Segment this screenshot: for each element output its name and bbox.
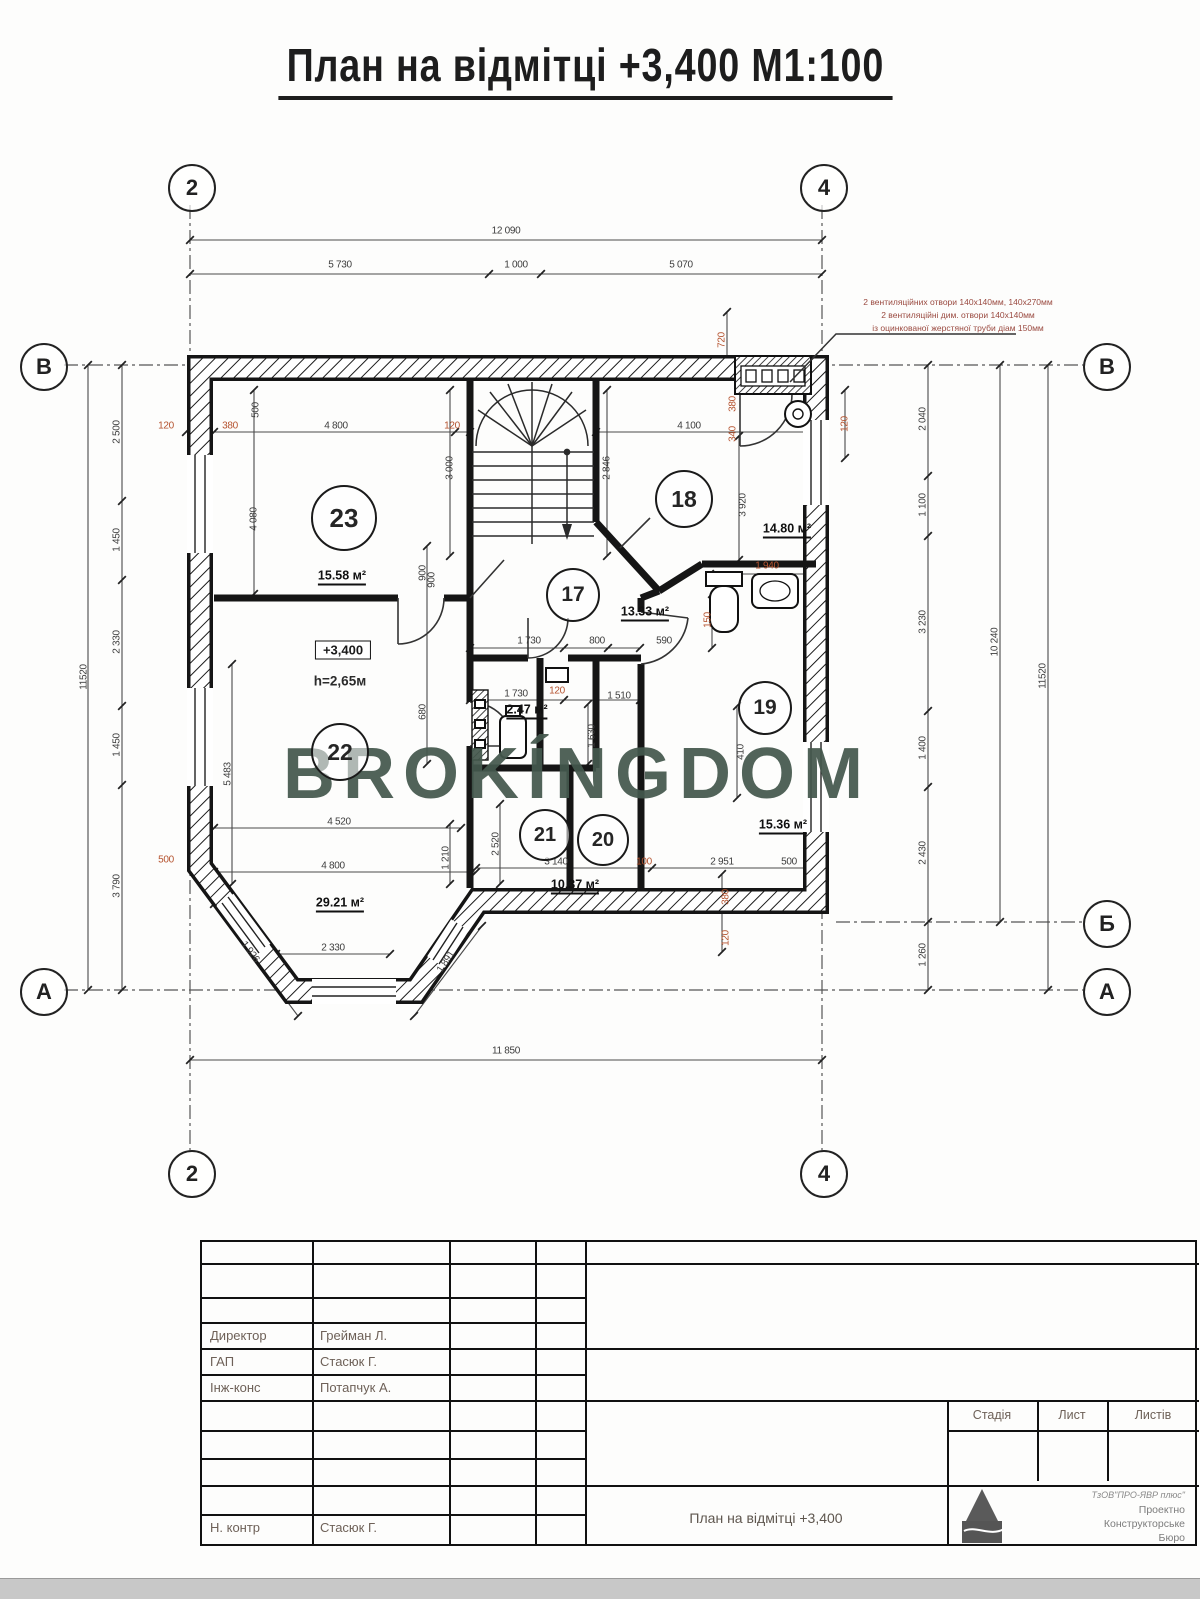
dimension-label: 410 — [736, 744, 747, 760]
dimension-label: 1 260 — [918, 943, 929, 967]
dimension-label: 11520 — [79, 664, 90, 690]
room-number: 19 — [738, 681, 792, 735]
dimension-label: 380 — [728, 396, 739, 412]
dimension-label: 150 — [703, 612, 714, 628]
dimension-label: 11 850 — [492, 1046, 520, 1057]
dimension-label: 2 330 — [321, 943, 345, 954]
role-label: Директор — [210, 1328, 267, 1343]
dimension-label: 1 630 — [587, 724, 598, 748]
dimension-label: 340 — [728, 426, 739, 442]
dimension-label: 120 — [721, 930, 732, 946]
company-logo-icon — [954, 1487, 1014, 1547]
room-number: 23 — [311, 485, 377, 551]
title-block: Директор Грейман Л. ГАП Стасюк Г. Інж-ко… — [200, 1240, 1197, 1546]
dimension-label: 680 — [418, 704, 429, 720]
axis-marker-4: 4 — [800, 1150, 848, 1198]
room-area-label: 29.21 м² — [316, 896, 364, 913]
role-label: ГАП — [210, 1354, 234, 1369]
sheet-column-header: Лист — [1058, 1408, 1085, 1422]
dimension-label: 500 — [158, 855, 174, 866]
dimension-label: 2 520 — [491, 832, 502, 856]
dimension-label: 3 000 — [445, 456, 456, 480]
dimension-label: 4 100 — [677, 421, 701, 432]
dimension-label: 1 000 — [504, 260, 528, 271]
room-area-label: 2.47 м² — [506, 703, 547, 720]
dimension-label: 3 230 — [918, 610, 929, 634]
dimension-label: 3 790 — [112, 874, 123, 898]
dimension-label: 11520 — [1038, 663, 1049, 689]
dimension-label: 1 730 — [517, 636, 541, 647]
company-line: Проектно — [1139, 1504, 1185, 1516]
room-area-label: 14.80 м² — [763, 522, 811, 539]
role-label: Н. контр — [210, 1520, 260, 1535]
dimension-label: 1 940 — [755, 561, 779, 572]
dimension-label: 380 — [222, 421, 238, 432]
dimension-label: 4 800 — [324, 421, 348, 432]
dimension-label: 2 846 — [602, 456, 613, 480]
axis-marker-В: В — [20, 343, 68, 391]
dimension-label: 2 430 — [918, 841, 929, 865]
stage-column-header: Стадія — [973, 1408, 1011, 1422]
axis-marker-В: В — [1083, 343, 1131, 391]
room-number: 22 — [311, 723, 369, 781]
dimension-label: 5 730 — [328, 260, 352, 271]
dimension-label: 4 520 — [327, 817, 351, 828]
dimension-label: 120 — [444, 421, 460, 432]
dimension-label: 4 800 — [321, 861, 345, 872]
axis-marker-Б: Б — [1083, 900, 1131, 948]
room-area-label: 15.58 м² — [318, 569, 366, 586]
dimension-label: 900 — [418, 565, 429, 581]
room-area-label: 15.36 м² — [759, 818, 807, 835]
dimension-label: 500 — [251, 402, 262, 418]
dimension-label: 1 400 — [918, 736, 929, 760]
dimension-label: 2 040 — [918, 407, 929, 431]
dimension-label: 720 — [717, 332, 728, 348]
dimension-label: 380 — [721, 889, 732, 905]
dimension-label: 2 330 — [112, 630, 123, 654]
dimension-label: 1 510 — [607, 691, 631, 702]
titleblock-drawing-name: План на відмітці +3,400 — [689, 1510, 842, 1526]
company-line: Бюро — [1159, 1532, 1185, 1544]
axis-marker-4: 4 — [800, 164, 848, 212]
dimension-label: 2 500 — [112, 420, 123, 444]
dimension-label: 1 926 — [239, 939, 262, 964]
room-number: 20 — [577, 814, 629, 866]
dimension-label: 10 240 — [990, 628, 1001, 657]
scan-edge-bar — [0, 1578, 1200, 1599]
axis-marker-2: 2 — [168, 1150, 216, 1198]
dimension-label: 1 210 — [441, 846, 452, 870]
room-number: 18 — [655, 470, 713, 528]
dimension-label: 1 730 — [504, 689, 528, 700]
dimension-label: 1 100 — [918, 493, 929, 517]
sheets-column-header: Листів — [1135, 1408, 1172, 1422]
drawing-sheet: План на відмітці +3,400 М1:100 BROKÍNGDO… — [0, 0, 1200, 1599]
dimension-label: 500 — [781, 857, 797, 868]
dimension-label: 120 — [549, 686, 565, 697]
role-label: Інж-конс — [210, 1380, 261, 1395]
dimension-label: 590 — [656, 636, 672, 647]
dimension-label: 1 450 — [112, 733, 123, 757]
person-name: Грейман Л. — [320, 1328, 387, 1343]
person-name: Потапчук А. — [320, 1380, 391, 1395]
person-name: Стасюк Г. — [320, 1354, 377, 1369]
dimension-label: 100 — [636, 857, 652, 868]
room-number: 17 — [546, 568, 600, 622]
dimension-label: 1 450 — [112, 528, 123, 552]
dimension-label: 2 951 — [710, 857, 734, 868]
dimension-label: 3 920 — [738, 493, 749, 517]
person-name: Стасюк Г. — [320, 1520, 377, 1535]
axis-marker-А: А — [1083, 968, 1131, 1016]
dimension-label: 800 — [589, 636, 605, 647]
room-area-label: 13.33 м² — [621, 605, 669, 622]
dimension-label: 5 070 — [669, 260, 693, 271]
axis-marker-2: 2 — [168, 164, 216, 212]
dimension-label: 1 891 — [435, 949, 457, 975]
dimension-label: 4 080 — [249, 507, 260, 531]
company-name: ТзОВ"ПРО-ЯВР плюс" — [1091, 1490, 1185, 1500]
company-line: Конструкторське — [1104, 1518, 1185, 1530]
axis-marker-А: А — [20, 968, 68, 1016]
dimension-label: 12 090 — [492, 226, 521, 237]
room-area-label: 10.37 м² — [551, 878, 599, 895]
dimension-label: 120 — [840, 416, 851, 432]
room-number: 21 — [519, 809, 571, 861]
dimension-label: 5 483 — [223, 762, 234, 786]
dimension-label: 120 — [158, 421, 174, 432]
